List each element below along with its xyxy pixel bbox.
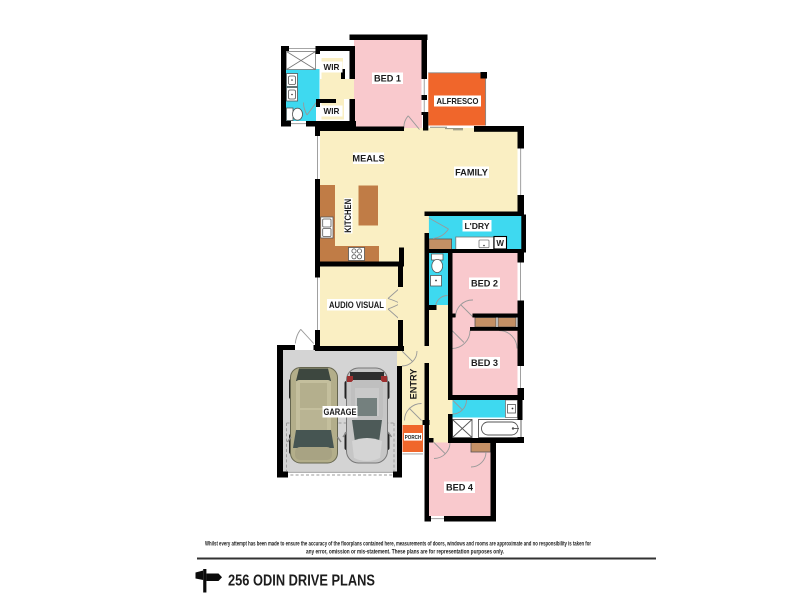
svg-text:MEALS: MEALS <box>352 154 384 164</box>
svg-text:256 ODIN DRIVE PLANS: 256 ODIN DRIVE PLANS <box>228 573 375 590</box>
svg-text:ENTRY: ENTRY <box>409 369 419 400</box>
svg-text:BED 3: BED 3 <box>471 358 498 368</box>
svg-text:PORCH: PORCH <box>405 435 422 441</box>
svg-text:GARAGE: GARAGE <box>324 407 357 417</box>
svg-text:BED 2: BED 2 <box>471 279 498 289</box>
svg-text:L'DRY: L'DRY <box>464 221 489 231</box>
svg-text:KITCHEN: KITCHEN <box>343 199 353 233</box>
svg-text:BED 4: BED 4 <box>446 483 474 493</box>
svg-text:FAMILY: FAMILY <box>455 168 488 178</box>
svg-text:Whilst every attempt has been: Whilst every attempt has been made to en… <box>205 542 591 548</box>
svg-text:BED 1: BED 1 <box>374 74 401 84</box>
svg-text:WIR: WIR <box>324 63 340 72</box>
svg-text:AUDIO VISUAL: AUDIO VISUAL <box>329 300 384 310</box>
svg-text:any error, omission or mis-sta: any error, omission or mis-statement. Th… <box>306 550 504 556</box>
svg-text:ALFRESCO: ALFRESCO <box>437 97 480 106</box>
svg-text:W: W <box>496 239 504 248</box>
svg-text:WIR: WIR <box>324 107 340 116</box>
